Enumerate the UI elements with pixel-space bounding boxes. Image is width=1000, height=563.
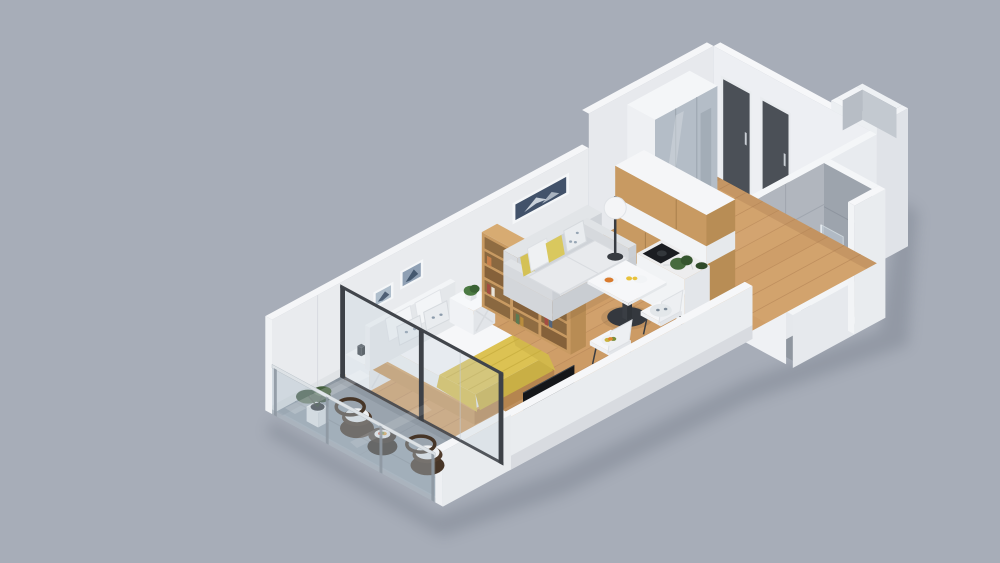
chair-food	[608, 337, 613, 341]
pillow-pattern-dot	[569, 240, 572, 242]
railing-post	[431, 453, 434, 502]
floorplan-page	[0, 0, 1000, 563]
nightstand-plant	[470, 285, 480, 293]
door-2-handle	[784, 153, 786, 166]
pillow-pattern-dot	[574, 241, 577, 243]
cooktop-pan	[657, 250, 667, 256]
pillow-pattern-dot	[432, 316, 435, 318]
railing-post	[326, 396, 329, 445]
isometric-floorplan-render	[0, 0, 1000, 563]
lemon	[632, 277, 637, 281]
pillow-pattern-dot	[576, 232, 579, 234]
pillow-pattern-dot	[664, 308, 668, 311]
book-spine	[487, 283, 490, 295]
plate-food	[605, 278, 614, 283]
island-herbs	[696, 262, 708, 269]
lemon	[626, 276, 632, 280]
railing-post	[274, 368, 277, 417]
partition-post	[499, 372, 504, 466]
pillow-pattern-dot	[439, 314, 442, 316]
chair-cushion-floral	[650, 304, 672, 317]
book-spine	[491, 287, 494, 298]
partition-post	[340, 286, 345, 380]
floor-lamp-globe	[604, 197, 626, 219]
pillow-pattern-dot	[656, 309, 660, 312]
back-wall-end-cap	[265, 316, 272, 414]
island-plant	[681, 255, 693, 265]
book-spine	[516, 313, 519, 325]
door-1-handle	[745, 132, 747, 146]
